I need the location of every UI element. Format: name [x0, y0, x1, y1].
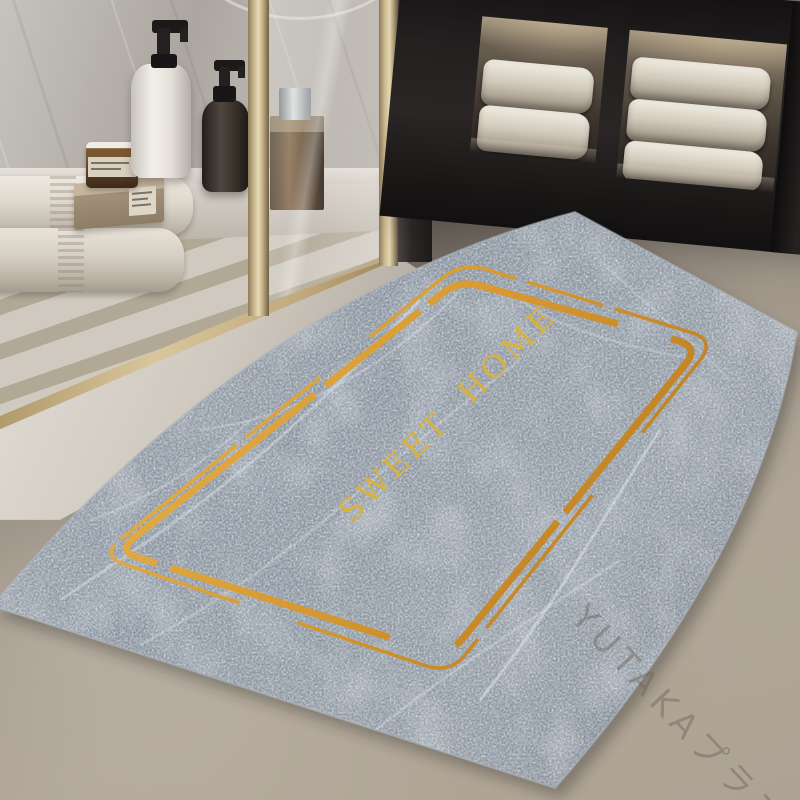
bathroom-photo: SWEET HOME YUTAKAプラス: [0, 0, 800, 800]
